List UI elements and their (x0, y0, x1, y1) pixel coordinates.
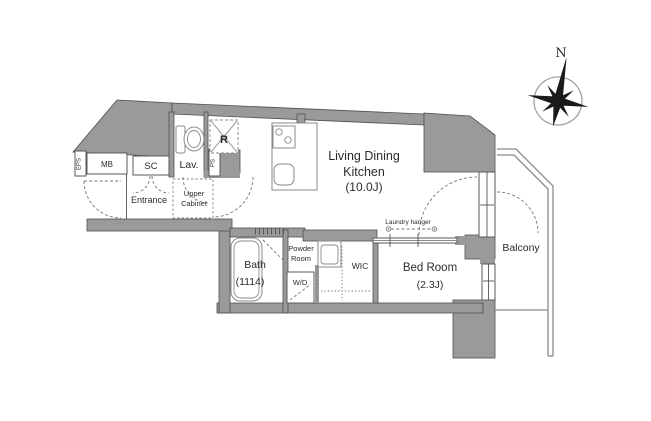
wall-top-left-wedge (73, 100, 172, 157)
vanity-icon (318, 241, 341, 267)
laundry-hanger-line (386, 227, 437, 232)
wall-bath-left (219, 230, 230, 313)
wall-right-mid-block (465, 235, 495, 259)
hallway-door-arc (213, 177, 253, 217)
wall-bedroom-left (373, 240, 378, 303)
entrance-door-arc (84, 181, 121, 218)
label-bath-size: (1114) (236, 276, 265, 288)
label-lavatory: Lav. (179, 159, 198, 171)
label-bedroom: Bed Room (403, 262, 457, 274)
bedroom-sliding-partition (373, 234, 457, 247)
wall-right-step (480, 258, 495, 264)
label-washer-dryer: W/D (293, 278, 308, 287)
wall-powder-wic-top (303, 230, 377, 241)
label-laundry-hanger: Laundry hanger (385, 219, 431, 226)
label-ldk-2: Kitchen (343, 165, 385, 179)
balcony-door-arc-inside (419, 177, 477, 235)
label-wic: WIC (352, 261, 369, 271)
floor-plan: N EPS MB SC Lav. PS R Entrance Upper Cab… (0, 0, 651, 421)
wall-hall-bottom (87, 219, 232, 231)
label-ldk-1: Living Dining (328, 149, 400, 163)
toilet-icon (176, 126, 204, 153)
label-upper-cabinet-2: Cabinet (181, 199, 208, 208)
wall-lav-right (204, 112, 208, 177)
washer-dryer-space (287, 272, 314, 303)
stove-icon (273, 126, 295, 148)
wall-top-right-corner-block (424, 113, 495, 172)
compass-north-label: N (555, 46, 566, 61)
label-eps: EPS (77, 158, 83, 170)
label-ldk-size: (10.0J) (345, 180, 382, 194)
wall-bottom-band (217, 303, 483, 313)
label-sc: SC (144, 161, 157, 172)
label-bedroom-size: (2.3J) (417, 279, 444, 291)
balcony-door-window (479, 172, 495, 237)
shoe-closet-door-arc-left (133, 176, 150, 193)
compass-rose: N (522, 46, 597, 133)
label-balcony: Balcony (502, 242, 540, 254)
label-mb: MB (101, 160, 113, 169)
wall-lav-left (169, 112, 174, 177)
bath-door-diagonal (263, 240, 286, 263)
shoe-closet-door-arc-right (152, 176, 169, 193)
sink-icon (274, 164, 294, 185)
balcony-door-arc-outside (497, 192, 538, 233)
kitchen-counter (272, 123, 317, 190)
label-upper-cabinet-1: Upper (184, 189, 205, 198)
bedroom-window (482, 264, 495, 300)
label-bath: Bath (244, 259, 266, 271)
label-powder-2: Room (291, 254, 311, 263)
label-powder-1: Powder (288, 244, 314, 253)
label-ps: PS (211, 159, 217, 167)
label-entrance: Entrance (131, 195, 167, 205)
label-refrigerator: R (220, 134, 228, 146)
